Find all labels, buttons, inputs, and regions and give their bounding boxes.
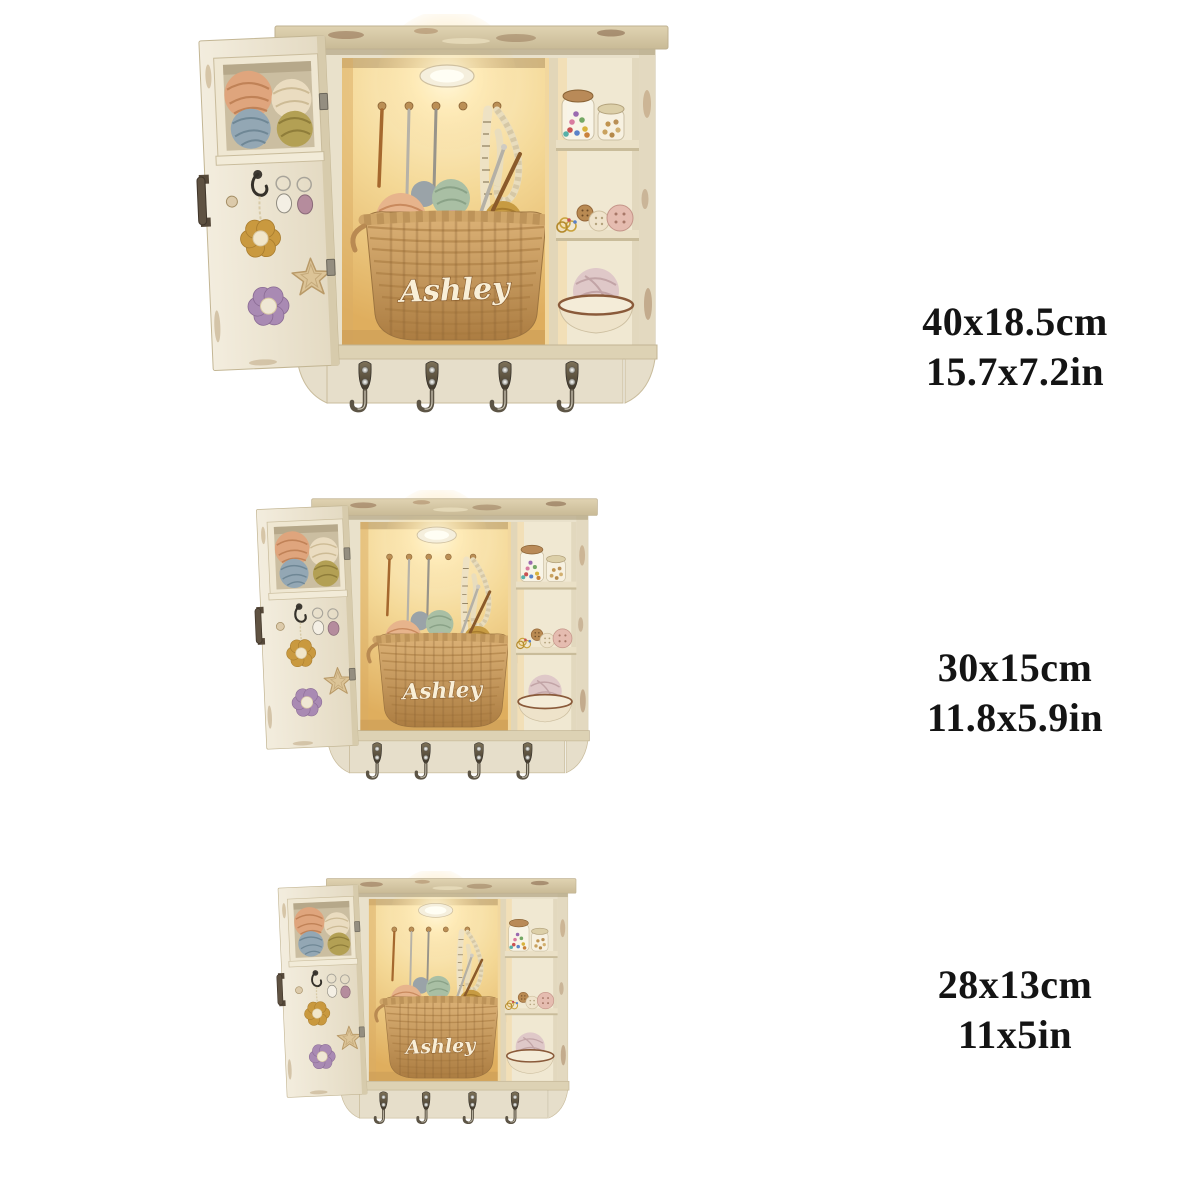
product-photo-large: [196, 14, 674, 417]
product-photo-medium: [254, 490, 602, 783]
size-cm-text: 40x18.5cm: [825, 297, 1200, 347]
size-in-text: 11x5in: [825, 1010, 1200, 1060]
size-cm-text: 30x15cm: [825, 643, 1200, 693]
size-label-28cm: 28x13cm 11x5in: [825, 960, 1200, 1060]
size-in-text: 11.8x5.9in: [825, 693, 1200, 743]
size-in-text: 15.7x7.2in: [825, 347, 1200, 397]
size-chart-composite: Ashley: [0, 0, 1200, 1200]
size-label-40cm: 40x18.5cm 15.7x7.2in: [825, 297, 1200, 397]
product-photo-small: [276, 871, 580, 1127]
size-label-30cm: 30x15cm 11.8x5.9in: [825, 643, 1200, 743]
size-cm-text: 28x13cm: [825, 960, 1200, 1010]
